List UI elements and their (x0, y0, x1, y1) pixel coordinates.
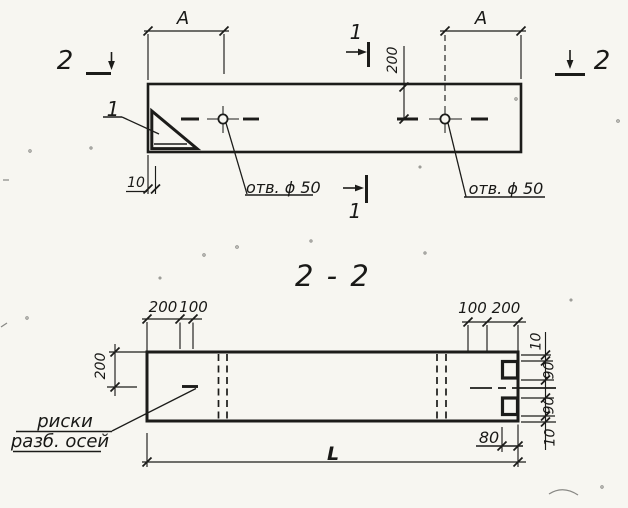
dim-10-label: 10 (125, 176, 147, 190)
beam-outline-plan (148, 84, 521, 152)
detail-callout-label: 1 (103, 99, 123, 119)
section-dim-100-topleft-label: 100 (179, 300, 208, 315)
hidden-hole-lines-right (437, 354, 446, 420)
beam-outline-section (147, 352, 518, 421)
section-cut-marker-2-left (86, 52, 115, 74)
dim-a-right (440, 27, 526, 105)
section-dim-90-lower-label: 90 (543, 388, 558, 424)
hole-left-label: отв. ϕ 50 (246, 180, 314, 196)
hole-left (181, 106, 259, 133)
section-dim-200-topright-label: 200 (489, 301, 523, 316)
dim-a-left (144, 27, 230, 81)
section-dim-80-label: 80 (477, 430, 501, 446)
dim-200-label: 200 (386, 38, 402, 82)
section-dim-10-bottom-label: 10 (544, 420, 559, 456)
section-dim-90-upper-label: 90 (543, 353, 558, 389)
chamfer-detail-triangle (152, 111, 197, 149)
cut-1-bottom-label: 1 (345, 201, 365, 221)
dim-200-left-section (107, 344, 147, 396)
axis-note-line1: риски (18, 413, 112, 431)
dim-a-left-label: A (171, 10, 195, 28)
cut-2-left-label: 2 (52, 48, 78, 74)
hidden-hole-lines-left (219, 354, 228, 420)
drawing-sheet: A A 2 2 1 1 200 10 1 отв. ϕ 50 отв. ϕ 50… (0, 0, 628, 508)
section-cut-marker-1-top (346, 42, 369, 67)
notch-upper (503, 362, 518, 379)
cut-2-right-label: 2 (588, 48, 616, 74)
hole-right (397, 106, 488, 133)
notch-lower (503, 398, 518, 415)
section-dim-100-topright-label: 100 (457, 301, 488, 316)
cut-1-top-label: 1 (346, 22, 366, 42)
dim-chain-top-left (142, 315, 202, 352)
dim-a-right-label: A (469, 10, 493, 28)
section-dim-200-left-label: 200 (94, 344, 110, 388)
top-view (86, 27, 585, 204)
axis-note-line2: разб. осей (10, 433, 110, 451)
section-title: 2 - 2 (295, 262, 367, 291)
section-dim-200-topleft-label: 200 (147, 300, 179, 315)
section-cut-marker-2-right (555, 50, 585, 75)
hole-right-label: отв. ϕ 50 (466, 181, 546, 197)
section-dim-l-label: L (321, 445, 345, 464)
dim-chain-top-right (462, 318, 526, 352)
